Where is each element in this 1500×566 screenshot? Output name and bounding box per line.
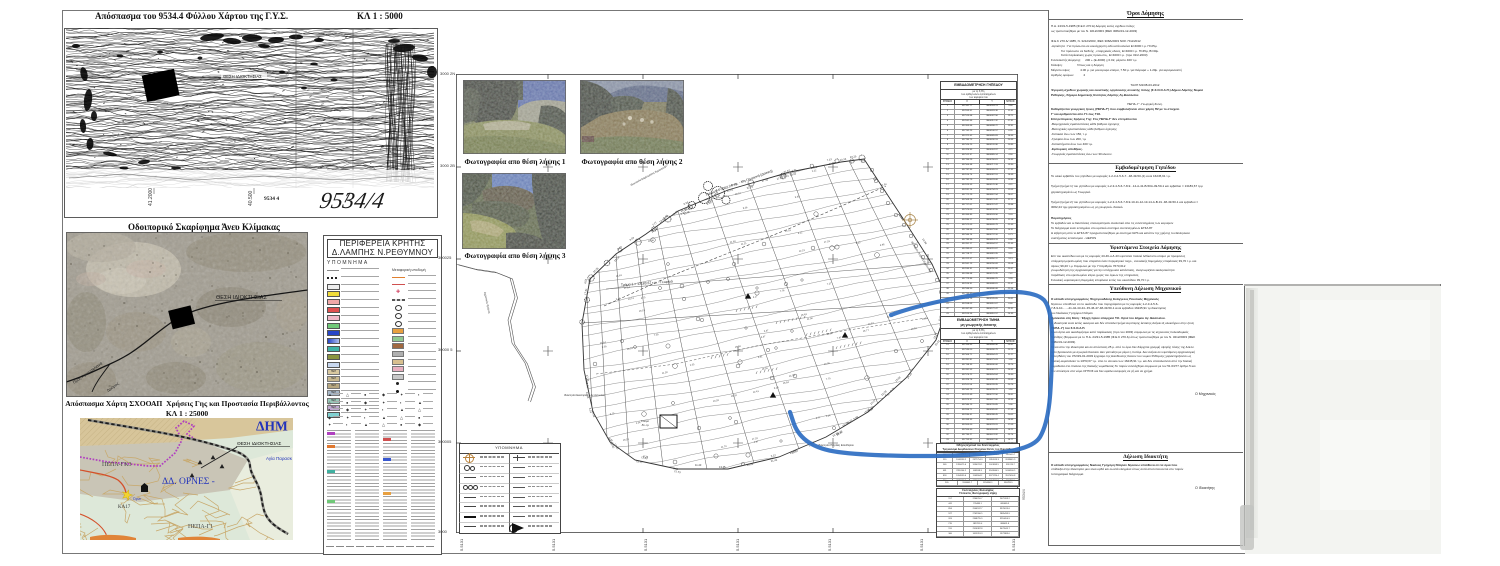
svg-text:11.43: 11.43 bbox=[695, 463, 702, 467]
svg-text:13.45: 13.45 bbox=[719, 465, 726, 469]
svg-text:ΔΔ. ΟΡΝΕΣ -: ΔΔ. ΟΡΝΕΣ - bbox=[162, 477, 215, 487]
svg-text:Ιδιοκτησία Πετράκη Ελευθερίου: Ιδιοκτησία Πετράκη Ελευθερίου bbox=[818, 443, 855, 447]
svg-text:ΠΕΠΑ-ΓΚ3: ΠΕΠΑ-ΓΚ3 bbox=[102, 462, 131, 468]
svg-text:40.500: 40.500 bbox=[248, 190, 254, 206]
svg-text:ΚΑ17: ΚΑ17 bbox=[118, 505, 131, 510]
svg-text:Κτίσμα: Κτίσμα bbox=[641, 419, 649, 423]
svg-text:ΘΕΣΗ ΙΔΙΟΚΤΗΣΙΑΣ: ΘΕΣΗ ΙΔΙΟΚΤΗΣΙΑΣ bbox=[216, 295, 267, 301]
svg-text:ΘΕΣΗ ΙΔΙΟΚΤΗΣΙΑΣ: ΘΕΣΗ ΙΔΙΟΚΤΗΣΙΑΣ bbox=[237, 441, 281, 447]
svg-text:-51.-τμ: -51.-τμ bbox=[641, 423, 649, 427]
svg-text:ΠΕΠΑ-Γ1: ΠΕΠΑ-Γ1 bbox=[188, 524, 213, 530]
svg-text:Αγία Παρασκ: Αγία Παρασκ bbox=[266, 456, 293, 461]
svg-text:9534 4: 9534 4 bbox=[264, 196, 279, 202]
svg-text:ΔΗΜ: ΔΗΜ bbox=[256, 419, 288, 434]
svg-text:41.2000: 41.2000 bbox=[148, 188, 154, 206]
svg-text:Ιδιοκτησία Εκκλησίας - Αγ.Αντω: Ιδιοκτησία Εκκλησίας - Αγ.Αντωνίου bbox=[564, 393, 606, 397]
svg-text:Όρνε: Όρνε bbox=[132, 497, 141, 501]
svg-text:ΘΕΣΗ ΙΔΙΟΚΤΗΣΙΑΣ: ΘΕΣΗ ΙΔΙΟΚΤΗΣΙΑΣ bbox=[223, 74, 262, 79]
